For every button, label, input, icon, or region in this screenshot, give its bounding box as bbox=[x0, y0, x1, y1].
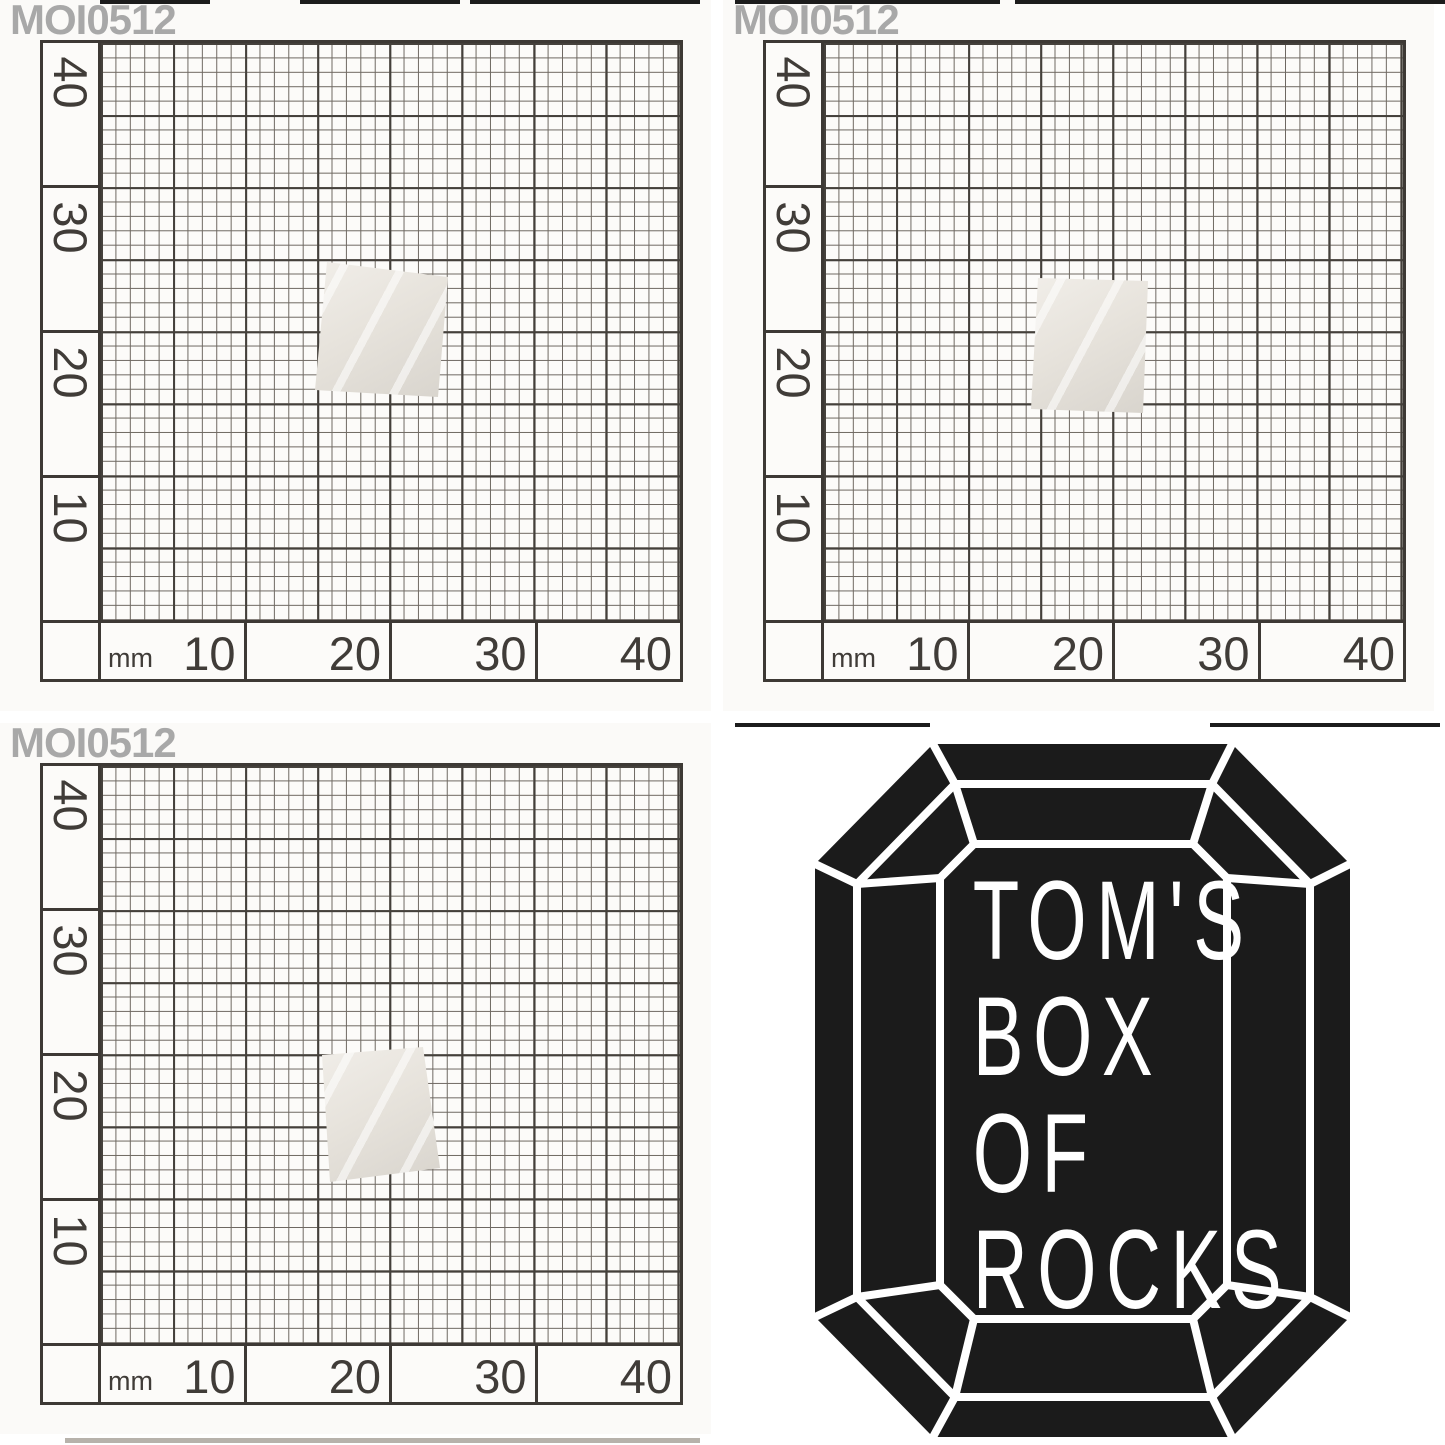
unit-label: mm bbox=[108, 643, 153, 674]
y-tick: 40 bbox=[43, 778, 98, 833]
x-tick: 30 bbox=[474, 626, 526, 681]
x-axis-row: mm10 20 30 40 bbox=[43, 1343, 680, 1402]
y-tick: 10 bbox=[43, 1213, 98, 1268]
axis-corner-cell bbox=[43, 623, 101, 679]
y-tick: 30 bbox=[766, 200, 821, 255]
y-tick: 20 bbox=[766, 345, 821, 400]
x-tick: 40 bbox=[1343, 626, 1395, 681]
x-tick: 10 bbox=[183, 1349, 235, 1404]
product-photo-collage: MOI0512 40 30 20 10 mm10 20 30 40 MOI051… bbox=[0, 0, 1445, 1445]
y-tick: 40 bbox=[43, 55, 98, 110]
photo-panel-front: MOI0512 40 30 20 10 mm10 20 30 40 bbox=[0, 0, 711, 711]
specimen-id-label: MOI0512 bbox=[733, 0, 899, 44]
x-tick: 40 bbox=[620, 1349, 672, 1404]
crop-artifact bbox=[735, 0, 1000, 4]
logo-line-2: BOX bbox=[973, 974, 1162, 1099]
x-tick: 30 bbox=[474, 1349, 526, 1404]
y-tick: 20 bbox=[43, 345, 98, 400]
x-tick: 10 bbox=[906, 626, 958, 681]
y-axis-column: 40 30 20 10 bbox=[43, 766, 101, 1343]
photo-panel-back: MOI0512 40 30 20 10 mm10 20 30 40 bbox=[0, 723, 711, 1434]
specimen-id-label: MOI0512 bbox=[10, 0, 176, 44]
y-axis-column: 40 30 20 10 bbox=[43, 43, 101, 620]
crop-artifact bbox=[1210, 723, 1440, 727]
logo-line-3: OF bbox=[973, 1091, 1098, 1216]
crop-artifact bbox=[470, 0, 700, 4]
mineral-specimen bbox=[1029, 276, 1149, 415]
x-tick: 40 bbox=[620, 626, 672, 681]
unit-label: mm bbox=[831, 643, 876, 674]
y-tick: 40 bbox=[766, 55, 821, 110]
crop-artifact bbox=[65, 1438, 700, 1443]
y-tick: 30 bbox=[43, 923, 98, 978]
axis-corner-cell bbox=[43, 1346, 101, 1402]
x-tick: 30 bbox=[1197, 626, 1249, 681]
y-tick: 20 bbox=[43, 1068, 98, 1123]
x-tick: 20 bbox=[329, 1349, 381, 1404]
crop-artifact bbox=[735, 723, 930, 727]
crop-artifact bbox=[1015, 0, 1445, 4]
y-tick: 30 bbox=[43, 200, 98, 255]
x-axis-row: mm10 20 30 40 bbox=[766, 620, 1403, 679]
logo-panel: TOM'S BOX OF ROCKS bbox=[723, 723, 1434, 1434]
x-tick: 20 bbox=[1052, 626, 1104, 681]
logo-line-1: TOM'S bbox=[973, 858, 1254, 983]
y-axis-column: 40 30 20 10 bbox=[766, 43, 824, 620]
specimen-id-label: MOI0512 bbox=[10, 719, 176, 767]
emerald-gem-logo: TOM'S BOX OF ROCKS bbox=[815, 744, 1350, 1437]
x-tick: 20 bbox=[329, 626, 381, 681]
x-tick: 10 bbox=[183, 626, 235, 681]
y-tick: 10 bbox=[766, 490, 821, 545]
unit-label: mm bbox=[108, 1366, 153, 1397]
photo-panel-side: MOI0512 40 30 20 10 mm10 20 30 40 bbox=[723, 0, 1434, 711]
crop-artifact bbox=[300, 0, 460, 4]
mineral-specimen bbox=[313, 260, 449, 400]
x-axis-row: mm10 20 30 40 bbox=[43, 620, 680, 679]
logo-line-4: ROCKS bbox=[973, 1207, 1291, 1332]
crop-artifact bbox=[100, 0, 210, 4]
mineral-specimen bbox=[320, 1045, 442, 1184]
axis-corner-cell bbox=[766, 623, 824, 679]
y-tick: 10 bbox=[43, 490, 98, 545]
